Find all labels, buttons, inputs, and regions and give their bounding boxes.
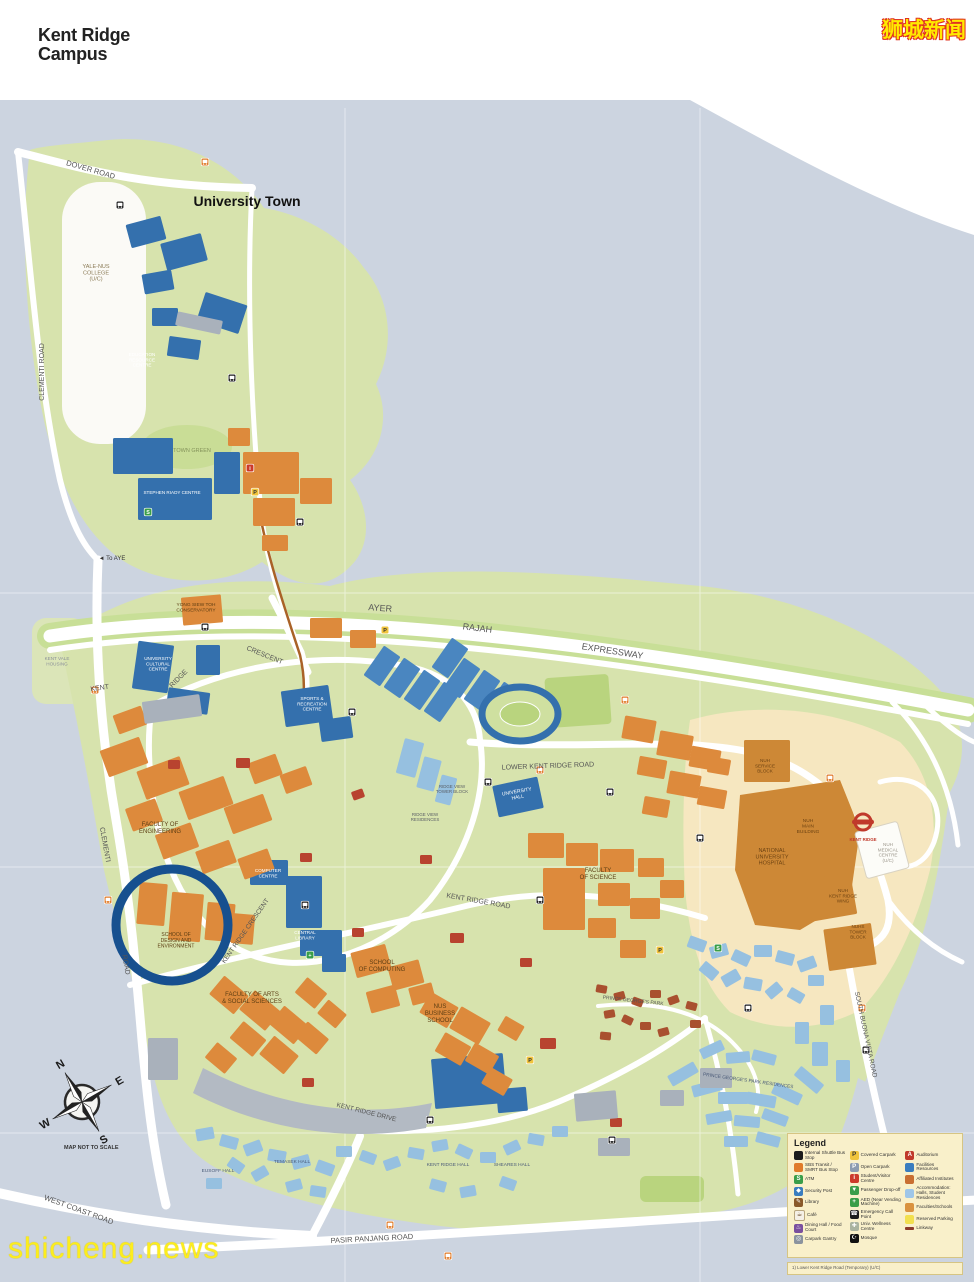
- visitor-centre-icon: i: [246, 464, 254, 472]
- shuttle-bus-stop-icon: [536, 896, 544, 904]
- shuttle-bus-stop-icon: [301, 901, 309, 909]
- legend-title: Legend: [794, 1138, 957, 1148]
- map-label: CLEMENTI ROAD: [39, 343, 46, 401]
- shuttle-bus-icon: [794, 1151, 803, 1160]
- shuttle-bus-stop-icon: [296, 518, 304, 526]
- legend-column-2: PCovered CarparkPOpen CarparkiStudent/Vi…: [850, 1151, 902, 1244]
- legend-item: Affiliated Institutes: [905, 1175, 957, 1184]
- legend-item-label: Security Post: [805, 1189, 832, 1194]
- legend-item-label: AED (Near Vending Machine): [861, 1198, 902, 1208]
- map-label: RIDGE VIEWRESIDENCES: [411, 812, 440, 822]
- aed-icon: +: [306, 951, 314, 959]
- public-bus-stop-icon: [104, 896, 112, 904]
- legend-item-label: Student/Visitor Centre: [861, 1174, 902, 1184]
- page: PPPPiSS+ N E W S MAP NOT TO S: [0, 0, 974, 1282]
- legend-item: ▼Passenger Drop-off: [850, 1186, 902, 1195]
- campus-map: PPPPiSS+ N E W S MAP NOT TO S: [0, 0, 974, 1282]
- legend-item-label: Univ. Wellness Centre: [861, 1222, 902, 1232]
- legend-item-label: Reserved Parking: [916, 1217, 953, 1222]
- legend-item: ◎Carpark Gantry: [794, 1235, 846, 1244]
- legend-item-label: Covered Carpark: [861, 1153, 896, 1158]
- svg-text:S: S: [716, 946, 720, 952]
- map-label: FACULTY OFENGINEERING: [139, 822, 181, 835]
- covered-carpark-icon: P: [850, 1151, 859, 1160]
- gantry-icon: ◎: [794, 1235, 803, 1244]
- public-bus-stop-icon: [201, 158, 209, 166]
- legend-item: iStudent/Visitor Centre: [850, 1174, 902, 1184]
- accommodation-swatch: [905, 1189, 914, 1198]
- svg-text:P: P: [528, 1058, 532, 1064]
- svg-text:P: P: [658, 948, 662, 954]
- open-carpark-icon: P: [850, 1163, 859, 1172]
- map-label: EDUCATIONRESOURCECENTRE: [129, 352, 156, 368]
- map-label: TEMASEK HALL: [274, 1159, 311, 1165]
- map-label: AYER: [368, 602, 393, 614]
- atm-icon: S: [794, 1175, 803, 1184]
- shuttle-bus-stop-icon: [348, 708, 356, 716]
- legend-item: PCovered Carpark: [850, 1151, 902, 1160]
- legend-item: ☎Emergency Call Point: [850, 1210, 902, 1220]
- legend-item: AAuditorium: [905, 1151, 957, 1160]
- auditorium-icon: A: [905, 1151, 914, 1160]
- public-bus-stop-icon: [826, 774, 834, 782]
- covered-carpark-icon: P: [381, 626, 389, 634]
- map-label: YONG SIEW TOHCONSERVATORY: [176, 602, 216, 614]
- legend-item-label: Library: [805, 1200, 819, 1205]
- shuttle-bus-stop-icon: [228, 374, 236, 382]
- shuttle-bus-stop-icon: [744, 1004, 752, 1012]
- shuttle-bus-stop-icon: [201, 623, 209, 631]
- legend-item-label: Passenger Drop-off: [861, 1188, 901, 1193]
- covered-carpark-icon: P: [251, 488, 259, 496]
- legend-item-label: Internal Shuttle Bus Stop: [805, 1151, 846, 1161]
- legend-item-label: Café: [807, 1213, 817, 1218]
- yale-nus-oval: [62, 182, 146, 444]
- visitor-centre-icon: i: [850, 1174, 859, 1183]
- svg-text:P: P: [253, 490, 257, 496]
- legend-footnote: 1) Lower Kent Ridge Road (Temporary) (U/…: [787, 1262, 963, 1275]
- legend-item: ✎Library: [794, 1198, 846, 1207]
- page-title-line1: Kent Ridge: [38, 26, 130, 45]
- shuttle-bus-stop-icon: [696, 834, 704, 842]
- legend-item: SBS Transit / SMRT Bus Stop: [794, 1163, 846, 1173]
- legend-item-label: Facilities Resources: [916, 1163, 957, 1173]
- legend-item-label: Affiliated Institutes: [916, 1177, 953, 1182]
- faculties-swatch: [905, 1203, 914, 1212]
- legend-item: Accommodation: Halls, Student Residences: [905, 1186, 957, 1200]
- page-title-line2: Campus: [38, 45, 130, 64]
- map-label: STEPHEN RIADY CENTRE: [143, 490, 200, 495]
- cafe-icon: ☕: [794, 1210, 805, 1221]
- legend-item-label: Accommodation: Halls, Student Residences: [916, 1186, 957, 1200]
- svg-text:S: S: [146, 510, 150, 516]
- map-label: EUSOFF HALL: [202, 1168, 235, 1174]
- public-bus-icon: [794, 1163, 803, 1172]
- legend-item: ♨Dining Hall / Food Court: [794, 1223, 846, 1233]
- legend-item: +AED (Near Vending Machine): [850, 1198, 902, 1208]
- aed-icon: +: [850, 1198, 859, 1207]
- covered-carpark-icon: P: [526, 1056, 534, 1064]
- facilities-swatch: [905, 1163, 914, 1172]
- legend-item: POpen Carpark: [850, 1163, 902, 1172]
- atm-icon: S: [714, 944, 722, 952]
- map-label: ◄ To AYE: [99, 556, 126, 562]
- legend-item: Faculties/Schools: [905, 1203, 957, 1212]
- shuttle-bus-stop-icon: [484, 778, 492, 786]
- linkway-swatch: [905, 1227, 914, 1230]
- mosque-icon: ☪: [850, 1234, 859, 1243]
- legend-column-1: Internal Shuttle Bus StopSBS Transit / S…: [794, 1151, 846, 1244]
- legend-item: Reserved Parking: [905, 1215, 957, 1224]
- legend-item-label: Auditorium: [916, 1153, 938, 1158]
- map-label: RIDGE VIEWTOWER BLOCK: [436, 784, 468, 794]
- watermark-top-right: 狮城新闻: [882, 14, 966, 44]
- legend-item-label: Open Carpark: [861, 1165, 890, 1170]
- emergency-call-icon: ☎: [850, 1210, 859, 1219]
- legend-item: SATM: [794, 1175, 846, 1184]
- public-bus-stop-icon: [621, 696, 629, 704]
- legend-column-3: AAuditoriumFacilities ResourcesAffiliate…: [905, 1151, 957, 1244]
- legend-item-label: Linkway: [916, 1226, 933, 1231]
- legend-item: Internal Shuttle Bus Stop: [794, 1151, 846, 1161]
- track-stadium: [482, 687, 558, 741]
- svg-text:+: +: [308, 953, 311, 959]
- legend-item: Facilities Resources: [905, 1163, 957, 1173]
- legend: Legend Internal Shuttle Bus StopSBS Tran…: [787, 1133, 963, 1258]
- shuttle-bus-stop-icon: [116, 201, 124, 209]
- map-label: SHEARES HALL: [494, 1162, 531, 1168]
- legend-item: ✚Univ. Wellness Centre: [850, 1222, 902, 1232]
- map-label: TOWN GREEN: [173, 448, 211, 454]
- legend-item-label: Carpark Gantry: [805, 1237, 836, 1242]
- map-label: University Town: [193, 193, 300, 209]
- map-label: SCHOOL OFDESIGN ANDENVIRONMENT: [158, 932, 195, 950]
- watermark-bottom-left: shicheng.news: [8, 1232, 219, 1266]
- legend-item-label: Emergency Call Point: [861, 1210, 902, 1220]
- map-label: FACULTY OF ARTS& SOCIAL SCIENCES: [222, 992, 282, 1005]
- legend-item: Linkway: [905, 1226, 957, 1231]
- legend-item-label: Faculties/Schools: [916, 1205, 952, 1210]
- map-label: KENT RIDGE HALL: [427, 1162, 470, 1168]
- legend-item-label: Dining Hall / Food Court: [805, 1223, 846, 1233]
- shuttle-bus-stop-icon: [426, 1116, 434, 1124]
- legend-item-label: SBS Transit / SMRT Bus Stop: [805, 1163, 846, 1173]
- affiliated-swatch: [905, 1175, 914, 1184]
- dining-icon: ♨: [794, 1224, 803, 1233]
- shuttle-bus-stop-icon: [608, 1136, 616, 1144]
- legend-item: ☕Café: [794, 1210, 846, 1221]
- atm-icon: S: [144, 508, 152, 516]
- map-label: KENT VALEHOUSING: [45, 656, 70, 666]
- map-label: KENT RIDGE: [849, 837, 876, 842]
- green-patch-south: [640, 1176, 704, 1202]
- security-post-icon: ◆: [794, 1187, 803, 1196]
- legend-item-label: ATM: [805, 1177, 814, 1182]
- drop-off-icon: ▼: [850, 1186, 859, 1195]
- reserved-parking-swatch: [905, 1215, 914, 1224]
- map-scale-note: MAP NOT TO SCALE: [64, 1145, 119, 1151]
- library-icon: ✎: [794, 1198, 803, 1207]
- covered-carpark-icon: P: [656, 946, 664, 954]
- map-label: FACULTYOF SCIENCE: [580, 868, 617, 881]
- legend-columns: Internal Shuttle Bus StopSBS Transit / S…: [794, 1151, 957, 1244]
- wellness-centre-icon: ✚: [850, 1222, 859, 1231]
- legend-item: ◆Security Post: [794, 1187, 846, 1196]
- page-title: Kent Ridge Campus: [38, 26, 130, 65]
- shuttle-bus-stop-icon: [606, 788, 614, 796]
- legend-item-label: Mosque: [861, 1236, 877, 1241]
- svg-text:P: P: [383, 628, 387, 634]
- public-bus-stop-icon: [386, 1221, 394, 1229]
- legend-item: ☪Mosque: [850, 1234, 902, 1243]
- public-bus-stop-icon: [444, 1252, 452, 1260]
- map-label: NATIONALUNIVERSITYHOSPITAL: [755, 848, 788, 867]
- map-label: CENTRALLIBRARY: [294, 930, 316, 940]
